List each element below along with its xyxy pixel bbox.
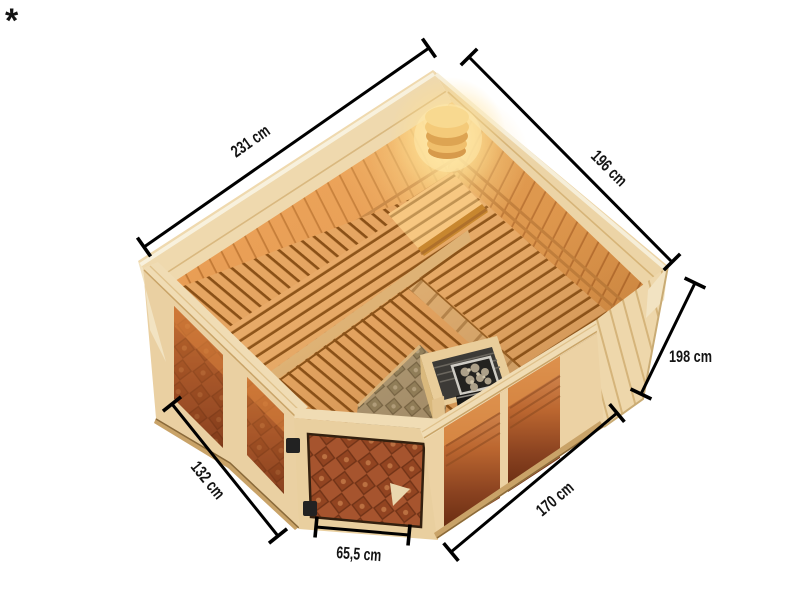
svg-text:*: * xyxy=(5,2,19,40)
svg-text:198 cm: 198 cm xyxy=(669,347,712,366)
svg-text:65,5 cm: 65,5 cm xyxy=(336,543,382,565)
